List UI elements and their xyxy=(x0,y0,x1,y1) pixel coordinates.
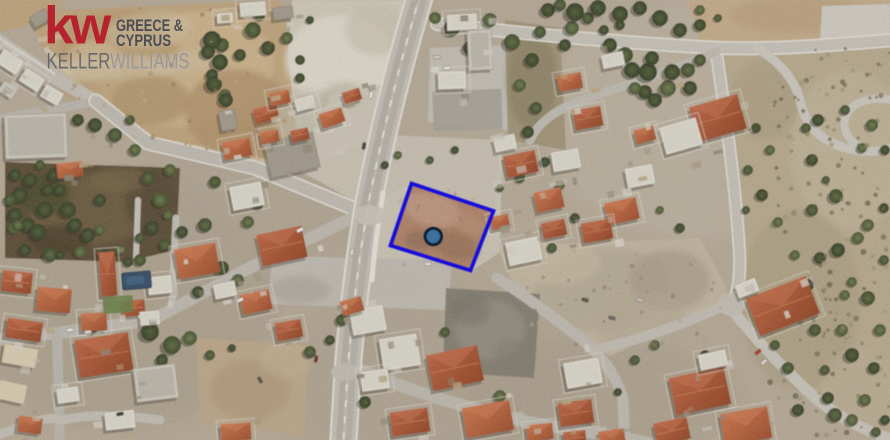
svg-text:KELLERWILLIAMS: KELLERWILLIAMS xyxy=(47,49,190,74)
svg-text:kw: kw xyxy=(44,0,112,56)
svg-text:CYPRUS: CYPRUS xyxy=(116,31,171,50)
